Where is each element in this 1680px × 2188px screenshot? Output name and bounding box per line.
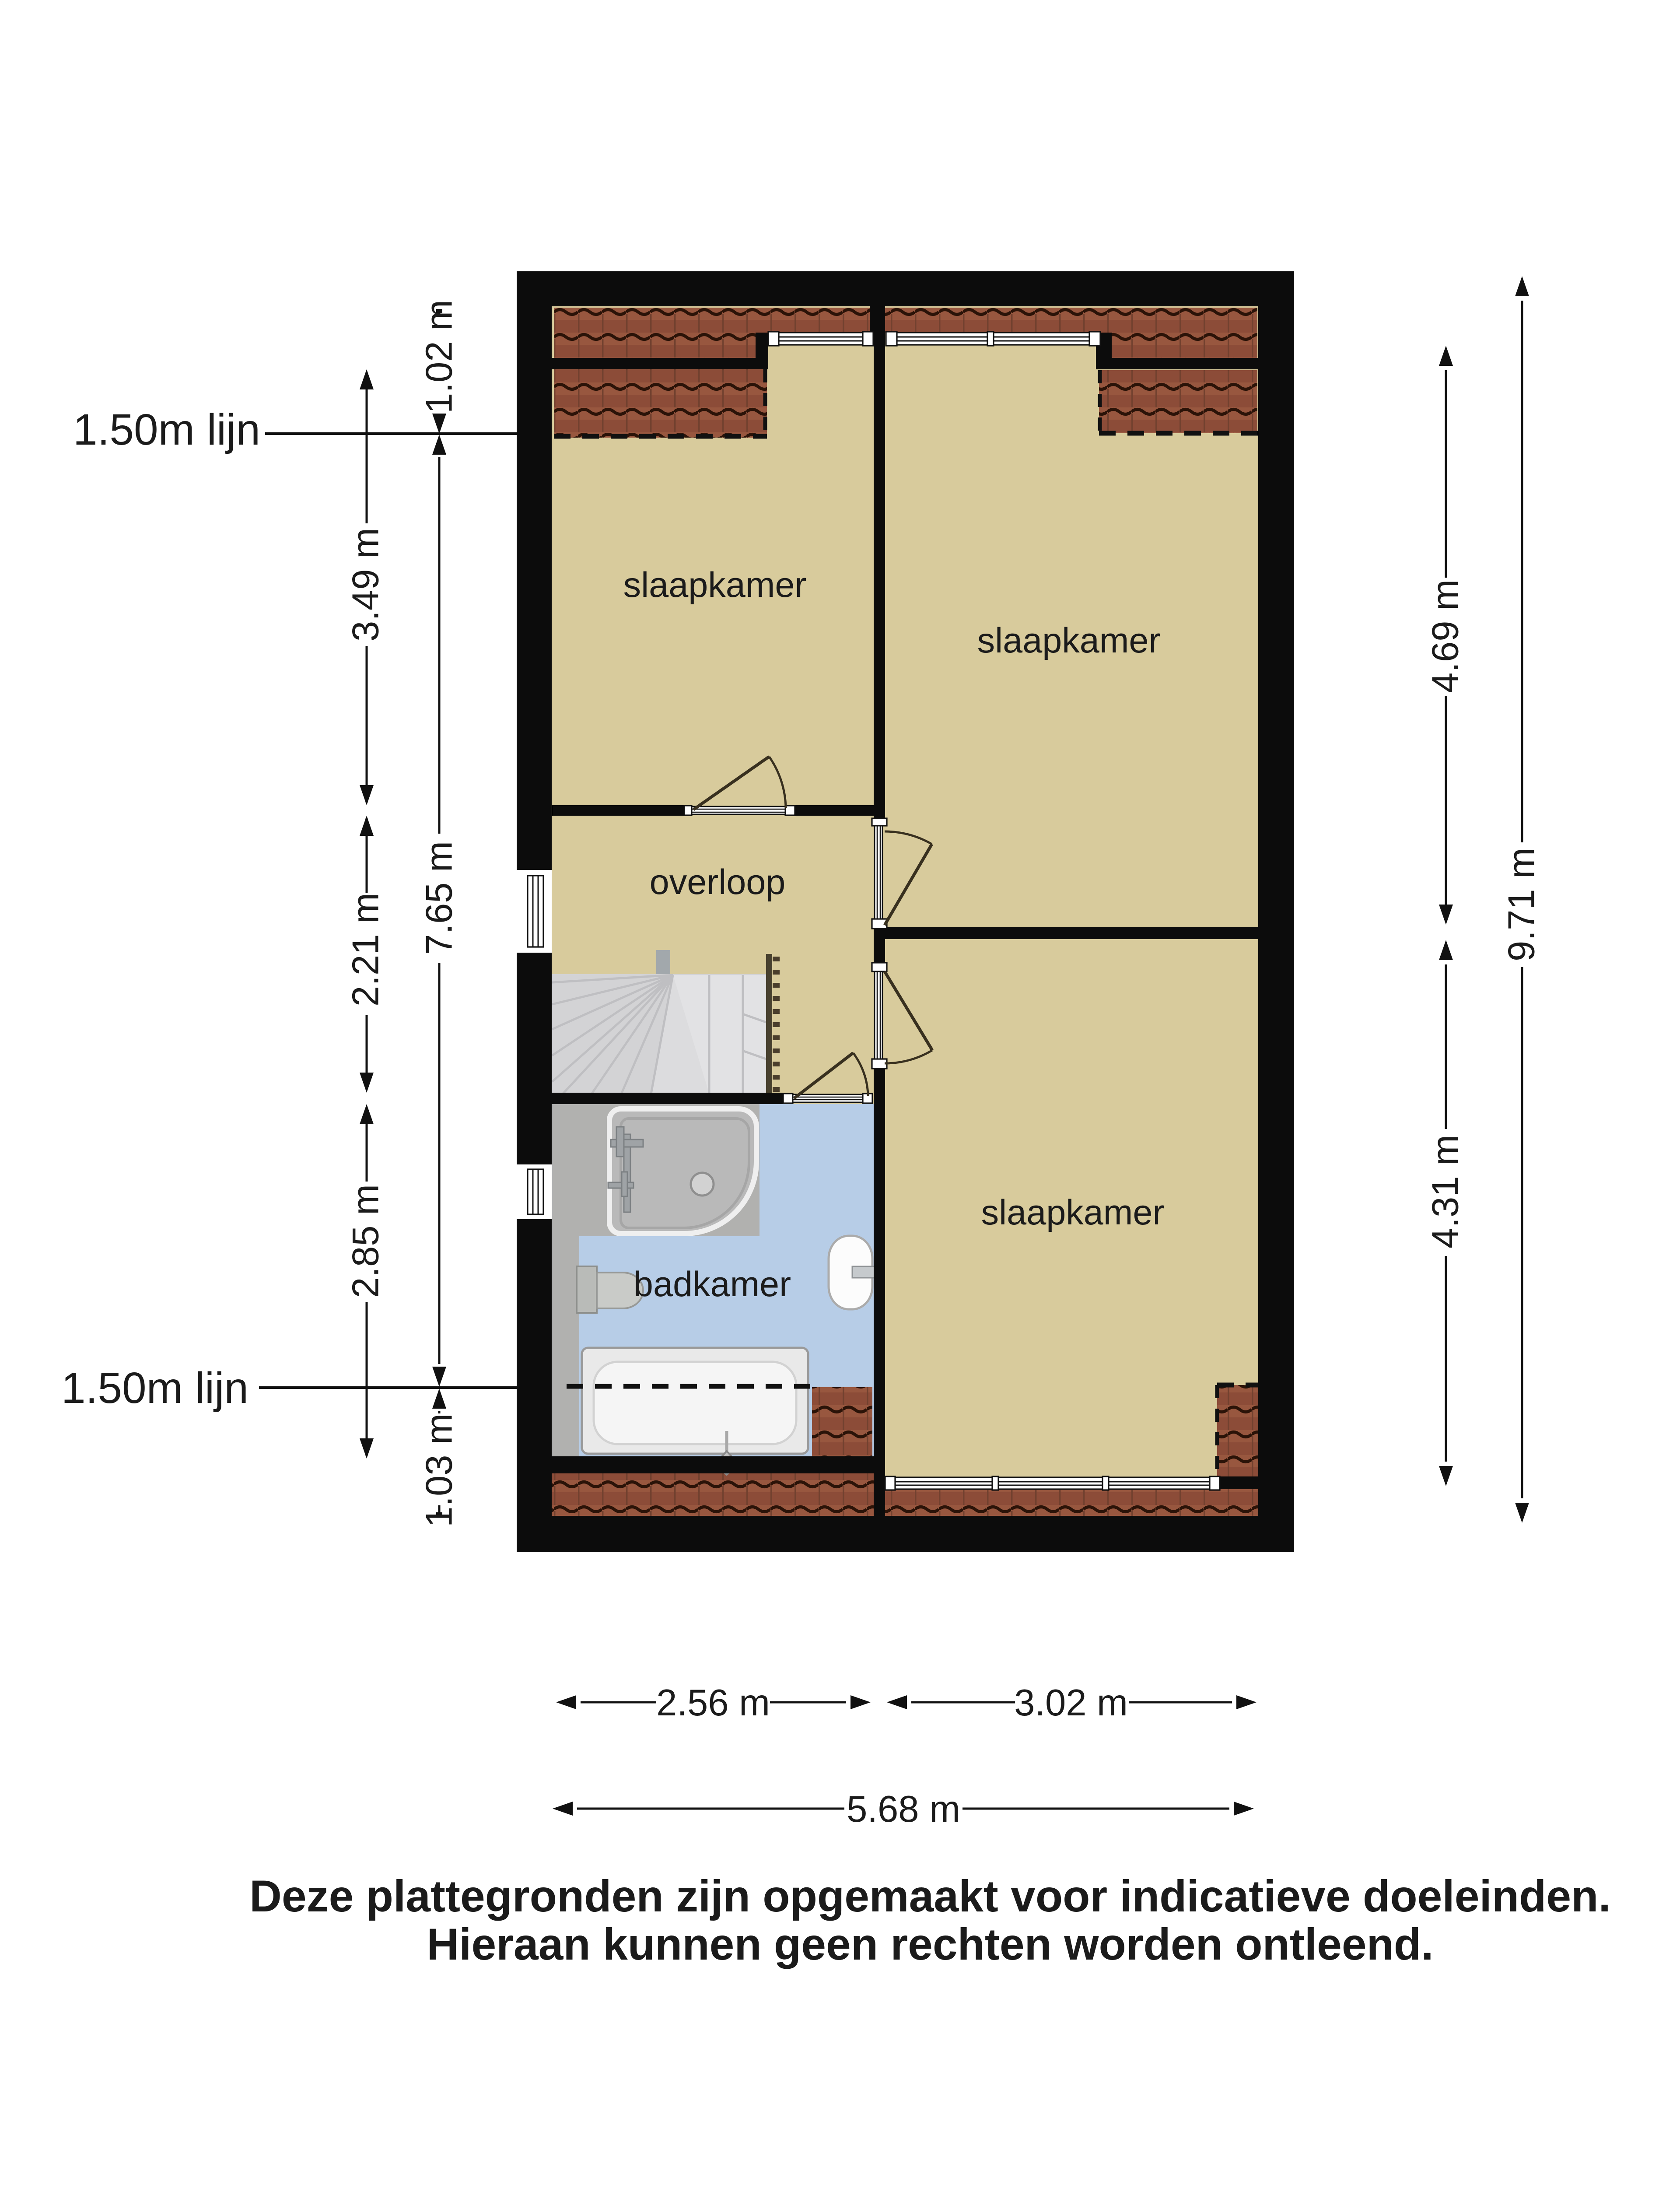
svg-text:overloop: overloop	[650, 863, 786, 902]
svg-text:2.85 m: 2.85 m	[345, 1184, 386, 1298]
svg-text:Deze plattegronden zijn opgema: Deze plattegronden zijn opgemaakt voor i…	[249, 1871, 1611, 1921]
svg-text:slaapkamer: slaapkamer	[623, 565, 807, 605]
svg-text:badkamer: badkamer	[633, 1265, 791, 1304]
svg-text:7.65 m: 7.65 m	[418, 841, 460, 955]
svg-text:slaapkamer: slaapkamer	[977, 621, 1161, 660]
svg-text:4.69 m: 4.69 m	[1424, 579, 1466, 693]
svg-text:2.56 m: 2.56 m	[656, 1682, 770, 1724]
svg-text:Hieraan kunnen geen rechten wo: Hieraan kunnen geen rechten worden ontle…	[427, 1919, 1433, 1969]
svg-text:9.71 m: 9.71 m	[1501, 848, 1542, 961]
svg-text:1.02 m: 1.02 m	[418, 300, 460, 414]
svg-text:1.03 m: 1.03 m	[418, 1413, 460, 1527]
svg-text:4.31 m: 4.31 m	[1424, 1135, 1466, 1248]
svg-text:3.49 m: 3.49 m	[345, 528, 386, 642]
svg-text:1.50m lijn: 1.50m lijn	[61, 1364, 248, 1413]
svg-text:3.02 m: 3.02 m	[1014, 1682, 1128, 1724]
svg-text:slaapkamer: slaapkamer	[981, 1193, 1165, 1232]
svg-text:1.50m lijn: 1.50m lijn	[73, 405, 260, 454]
svg-text:2.21 m: 2.21 m	[345, 893, 386, 1006]
svg-text:5.68 m: 5.68 m	[847, 1788, 960, 1830]
